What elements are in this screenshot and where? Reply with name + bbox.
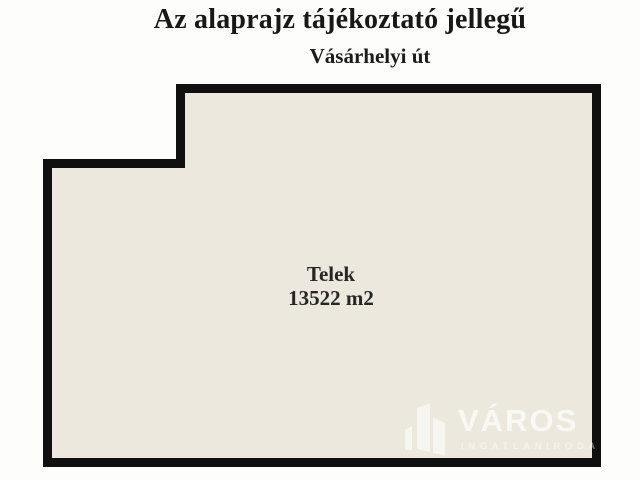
floorplan-page: Az alaprajz tájékoztató jellegű Vásárhel… [0,0,640,480]
plot-center-label: Telek 13522 m2 [131,262,531,310]
brand-name: VÁROS [458,403,578,439]
brand-tagline: INGATLANIRODA [461,441,600,452]
buildings-icon [402,400,448,456]
plot-area-value: 13522 m2 [131,286,531,310]
plot-label: Telek [131,262,531,286]
